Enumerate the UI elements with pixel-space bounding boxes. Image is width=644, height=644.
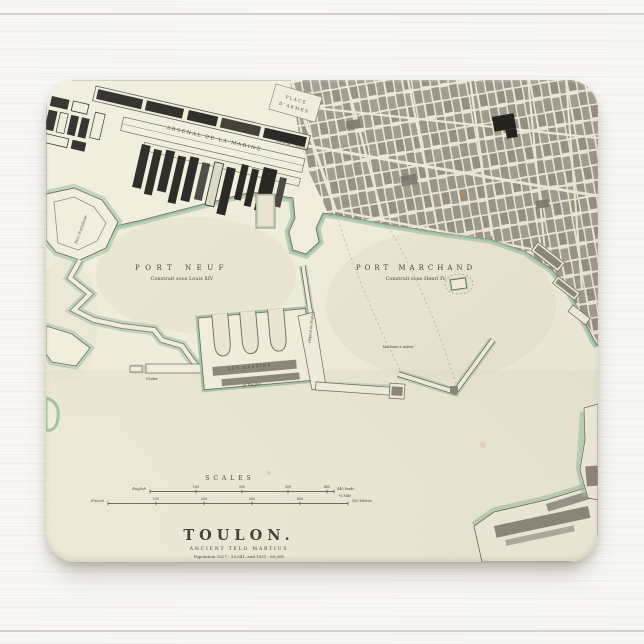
scales-heading: SCALES [205,475,255,482]
english-tick-200: 200 [239,485,245,489]
french-tick-400: 400 [297,497,303,501]
french-scale-label: French [90,499,104,503]
english-tick-400: 400 [324,485,330,489]
map-title: TOULON. [183,527,294,544]
english-tick-100: 100 [193,485,199,489]
chaine-label: Chaîne [146,377,158,381]
english-end-label: 440 Yards [337,487,354,491]
port-neuf-label: PORT NEUF [135,264,229,272]
inner-darse [256,194,275,228]
port-marchand-caption: Construit sous Henri IV. [386,276,447,282]
english-quarter-mile: ¼ Mile [339,493,351,498]
paper-stain [267,471,271,475]
map-subtitle: ANCIENT TELO MARTIUS [189,546,289,552]
english-tick-300: 300 [285,485,291,489]
paper-stain [480,442,486,448]
mousepad: PLACE D'ARMES [46,80,598,562]
product-photo-background: { "product": { "description": "Vintage m… [0,0,644,644]
wood-plank-seam [0,630,644,632]
map-population: Population 1827 - 33,041, and 1851 - 69,… [194,554,284,559]
toulon-map: PLACE D'ARMES [46,80,598,562]
paper-fleck [462,192,465,195]
west-jetty [130,364,208,373]
french-tick-200: 200 [201,497,207,501]
les-bassins-docks [198,307,326,390]
english-scale-label: English [131,487,146,491]
machine-a-mater-label: Machine à mâter [382,345,413,349]
wood-plank-seam [0,13,644,15]
port-marchand-label: PORT MARCHAND [356,264,476,272]
french-end-label: 500 Mètres [352,499,372,503]
port-neuf-caption: Construit sous Louis XIV [151,276,214,282]
french-tick-300: 300 [249,497,255,501]
french-tick-100: 100 [153,497,159,501]
